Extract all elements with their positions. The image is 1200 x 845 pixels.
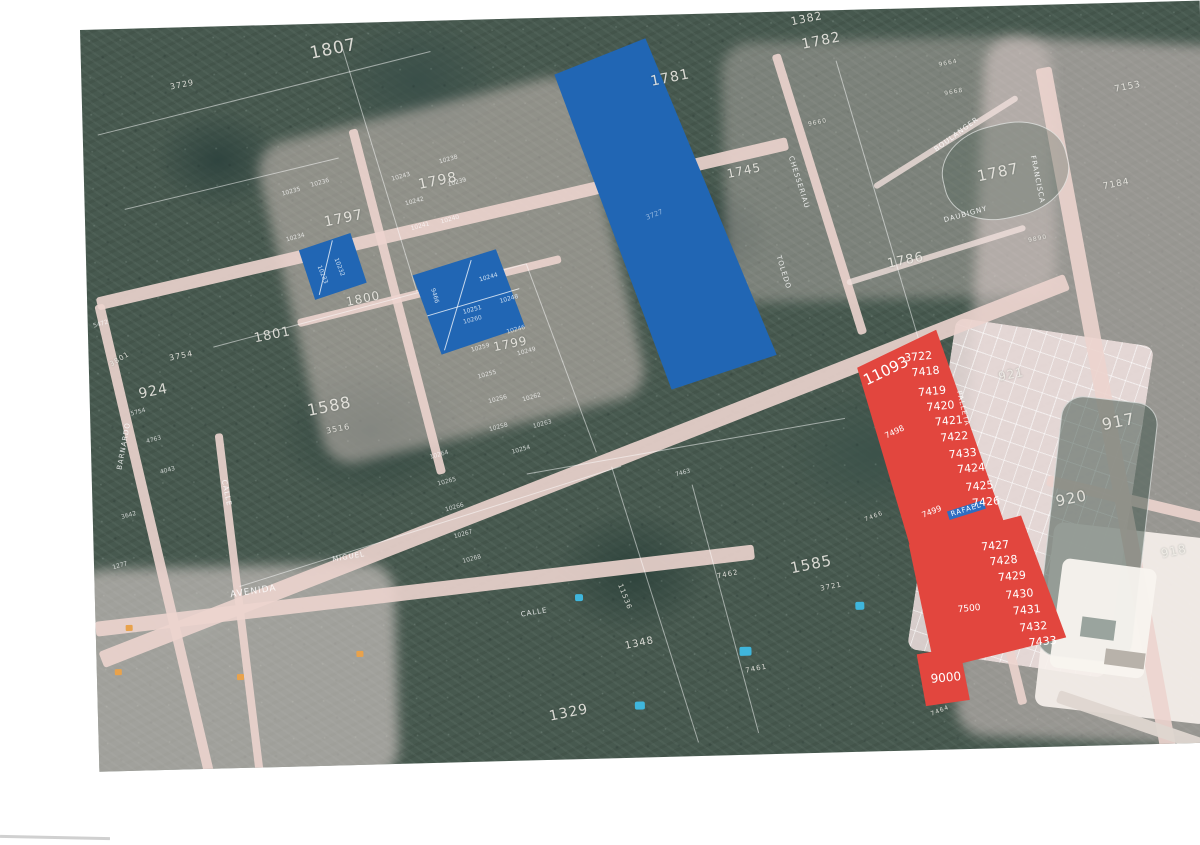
blue-lot-label-10244: 10244: [479, 273, 499, 284]
parcel-label-1781: 1781: [649, 67, 691, 89]
street-label-CALLE: CALLE: [220, 479, 232, 507]
parcel-label-3516: 3516: [325, 423, 350, 436]
tiny-label-10236: 10236: [310, 178, 330, 189]
tiny-label-3642: 3642: [121, 511, 137, 521]
parcel-label-3754: 3754: [169, 350, 194, 363]
scanned-page: 1807372917981797178213821781174517871786…: [0, 0, 1200, 845]
red-lot-label-7420: 7420: [926, 399, 955, 413]
parcel-label-1787: 1787: [976, 161, 1020, 184]
tiny-label-10267: 10267: [453, 529, 473, 540]
red-lot-label-7422: 7422: [940, 430, 969, 444]
tiny-label-10262: 10262: [522, 392, 542, 403]
red-lot-label-3722: 3722: [904, 350, 933, 364]
blue-lot-label-10232: 10232: [332, 257, 345, 277]
street-label-AVENIDA: AVENIDA: [230, 584, 278, 600]
parcel-label-9890: 9890: [1028, 234, 1048, 244]
red-lot-label-7428: 7428: [989, 554, 1018, 568]
parcel-label-3801: 3801: [109, 351, 131, 368]
red-lot-label-7421: 7421: [934, 414, 963, 428]
red-lot-label-9000: 9000: [930, 670, 962, 685]
parcel-label-11536: 11536: [616, 583, 633, 611]
parcel-label-3721: 3721: [820, 581, 843, 592]
red-lot-label-7433: 7433: [948, 447, 977, 461]
tiny-label-10255: 10255: [477, 370, 497, 381]
parcel-label-920: 920: [1054, 488, 1088, 509]
red-lot-label-7425: 7425: [965, 479, 994, 493]
parcel-label-1800: 1800: [345, 289, 381, 308]
red-lot-label-7429: 7429: [998, 569, 1027, 583]
parcel-label-9660: 9660: [808, 118, 828, 128]
tiny-label-10263: 10263: [532, 419, 552, 430]
parcel-label-1782: 1782: [800, 30, 842, 52]
tiny-label-10238: 10238: [439, 155, 459, 166]
tiny-label-10254: 10254: [511, 445, 531, 456]
red-lot-label-7418: 7418: [911, 365, 940, 379]
blue-lot-label-10233: 10233: [316, 265, 329, 285]
tiny-label-10265: 10265: [437, 477, 457, 488]
tiny-label-4763: 4763: [146, 435, 162, 445]
parcel-label-7464: 7464: [930, 705, 950, 718]
street-label-BOULANGER: BOULANGER: [933, 116, 980, 153]
parcel-label-918: 918: [1160, 543, 1188, 560]
red-lot-label-7431: 7431: [1012, 603, 1041, 617]
street-label-CALLE: CALLE: [520, 607, 548, 618]
tiny-label-10243: 10243: [391, 172, 411, 183]
tiny-label-10234: 10234: [286, 233, 306, 244]
parcel-label-1588: 1588: [306, 394, 353, 419]
street-label-BARNARDO: BARNARDO: [117, 422, 133, 471]
tiny-label-10258: 10258: [489, 422, 509, 433]
parcel-label-921: 921: [997, 366, 1025, 383]
scan-artifact-line: [0, 835, 110, 840]
tiny-label-10256: 10256: [488, 394, 508, 405]
tiny-label-10235: 10235: [281, 187, 301, 198]
tiny-label-10266: 10266: [445, 503, 465, 514]
parcel-label-924: 924: [137, 382, 169, 402]
tiny-label-10241: 10241: [410, 221, 430, 232]
parcel-label-1585: 1585: [789, 553, 833, 576]
parcel-label-1745: 1745: [726, 161, 762, 180]
red-lot-label-7433: 7433: [1028, 635, 1057, 649]
parcel-label-7466: 7466: [864, 511, 884, 524]
parcel-label-9668: 9668: [944, 88, 964, 98]
parcel-label-7462: 7462: [716, 569, 739, 580]
parcel-label-1807: 1807: [308, 37, 358, 63]
blue-lot-label-9466: 9466: [429, 288, 439, 304]
red-lot-label-7427: 7427: [981, 539, 1010, 553]
red-lot-label-7430: 7430: [1005, 587, 1034, 601]
parcel-label-9664: 9664: [938, 59, 958, 69]
parcel-label-7153: 7153: [1114, 81, 1142, 95]
parcel-label-3729: 3729: [169, 79, 194, 92]
parcel-label-7461: 7461: [745, 663, 768, 674]
tiny-label-5472: 5472: [93, 320, 109, 330]
tiny-label-10260: 10260: [463, 315, 483, 326]
tiny-label-10259: 10259: [470, 343, 490, 354]
red-lot-label-7500: 7500: [957, 604, 981, 615]
street-label-DAUBIGNY: DAUBIGNY: [943, 205, 988, 224]
aerial-map: 1807372917981797178213821781174517871786…: [80, 1, 1200, 772]
tiny-label-5754: 5754: [130, 408, 146, 418]
parcel-label-1329: 1329: [548, 702, 590, 724]
tiny-label-1277: 1277: [112, 561, 128, 571]
map-label-layer: 1807372917981797178213821781174517871786…: [80, 1, 1200, 772]
parcel-label-1786: 1786: [886, 251, 925, 271]
red-lot-label-7419: 7419: [918, 385, 947, 399]
tiny-label-4043: 4043: [160, 466, 176, 476]
parcel-label-7184: 7184: [1102, 178, 1130, 192]
blue-lot-label-10248: 10248: [499, 294, 519, 305]
street-label-MIGUEL: MIGUEL: [332, 551, 366, 563]
parcel-label-1801: 1801: [253, 325, 292, 345]
tiny-label-10268: 10268: [462, 554, 482, 565]
red-lot-label-7426: 7426: [972, 495, 1001, 509]
parcel-label-1382: 1382: [790, 10, 824, 27]
parcel-label-1348: 1348: [624, 636, 655, 652]
red-lot-label-7424: 7424: [957, 462, 986, 476]
blue-lot-label-3727: 3727: [645, 209, 664, 222]
red-lot-label-7499: 7499: [921, 505, 943, 520]
red-lot-label-7498: 7498: [884, 424, 906, 440]
tiny-label-10240: 10240: [440, 215, 460, 226]
street-label-CHESSERIAU: CHESSERIAU: [787, 155, 810, 209]
street-label-TOLEDO: TOLEDO: [774, 255, 791, 290]
tiny-label-10242: 10242: [405, 196, 425, 207]
tiny-label-7463: 7463: [675, 468, 691, 478]
red-lot-label-7432: 7432: [1019, 620, 1048, 634]
parcel-label-917: 917: [1100, 411, 1136, 433]
tiny-label-10264: 10264: [429, 450, 449, 461]
parcel-label-1797: 1797: [323, 208, 365, 230]
street-label-FRANCISCA: FRANCISCA: [1029, 155, 1046, 204]
